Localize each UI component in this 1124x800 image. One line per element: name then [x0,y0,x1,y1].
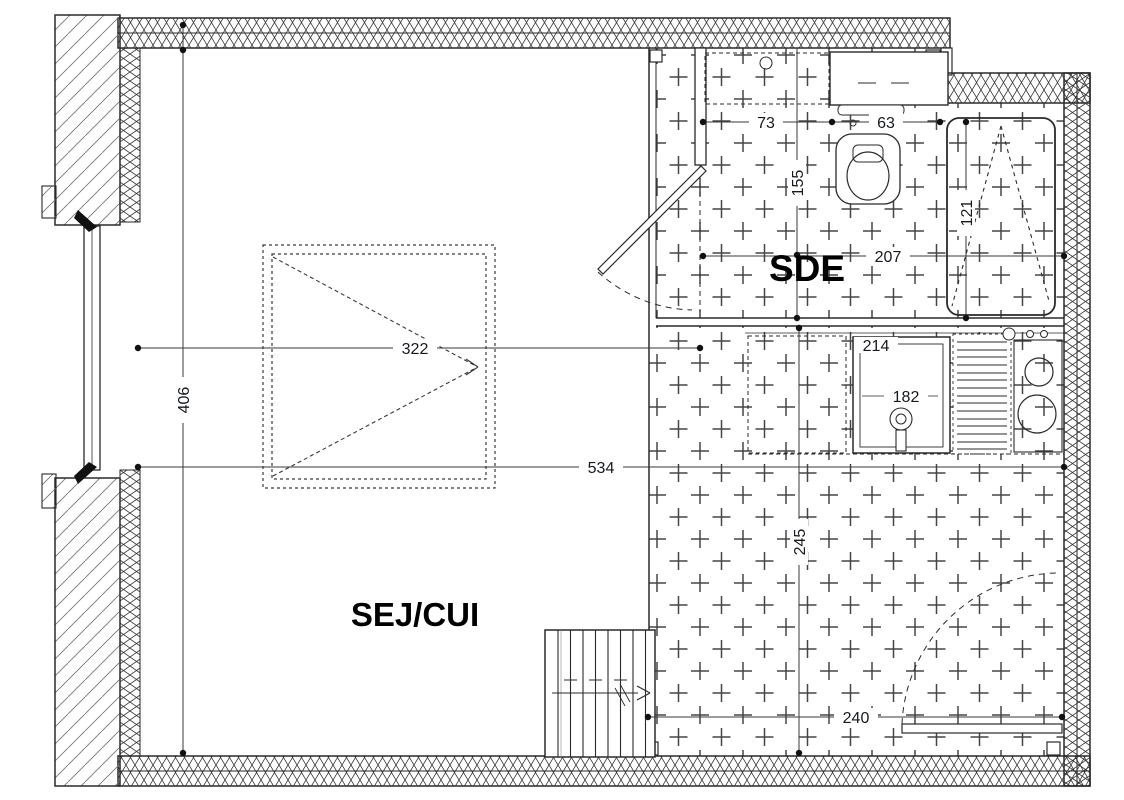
dim-label-207: 207 [875,249,902,266]
dim-label-155: 155 [790,170,807,197]
room-label-sej-cui: SEJ/CUI [351,596,479,633]
sde-entry-wall-stub [695,48,706,165]
dim-label-245: 245 [792,529,809,556]
sink-faucet-stem [896,430,906,451]
sink-drain-outer [890,408,912,430]
cooktop-knob1 [1027,331,1034,338]
drainboard [953,334,1011,454]
wall-post-bottom-right [1047,742,1060,755]
left-wall-upper-notch [42,186,56,218]
dim-label-214: 214 [863,338,890,355]
faucet-circle [1003,328,1015,340]
room-label-sde: SDE [769,248,845,289]
stairs [545,630,655,757]
entrance-door-leaf [902,724,1062,733]
dim-label-406: 406 [176,387,193,414]
dim-label-73: 73 [757,115,775,132]
dim-label-534: 534 [588,460,615,477]
dim-label-240: 240 [843,710,870,727]
left-wall-lower-notch [42,474,56,508]
wall-post-top-left [650,50,662,62]
dim-label-121: 121 [959,200,976,227]
floor-plan-canvas: 73 63 155 121 207 322 406 214 182 534 24… [0,0,1124,800]
left-wall-upper-masonry [55,15,120,225]
left-wall-lower-masonry [55,478,120,786]
dim-label-322: 322 [402,341,429,358]
left-wall-lower-insulation [120,470,140,756]
floor-plan-drawing: 73 63 155 121 207 322 406 214 182 534 24… [0,0,1124,800]
toilet-fixture [836,134,900,204]
left-wall-upper-insulation [120,48,140,222]
dim-label-182: 182 [893,389,920,406]
cooktop-knob2 [1041,331,1048,338]
dim-label-63: 63 [877,115,895,132]
washbasin-counter [830,52,948,105]
